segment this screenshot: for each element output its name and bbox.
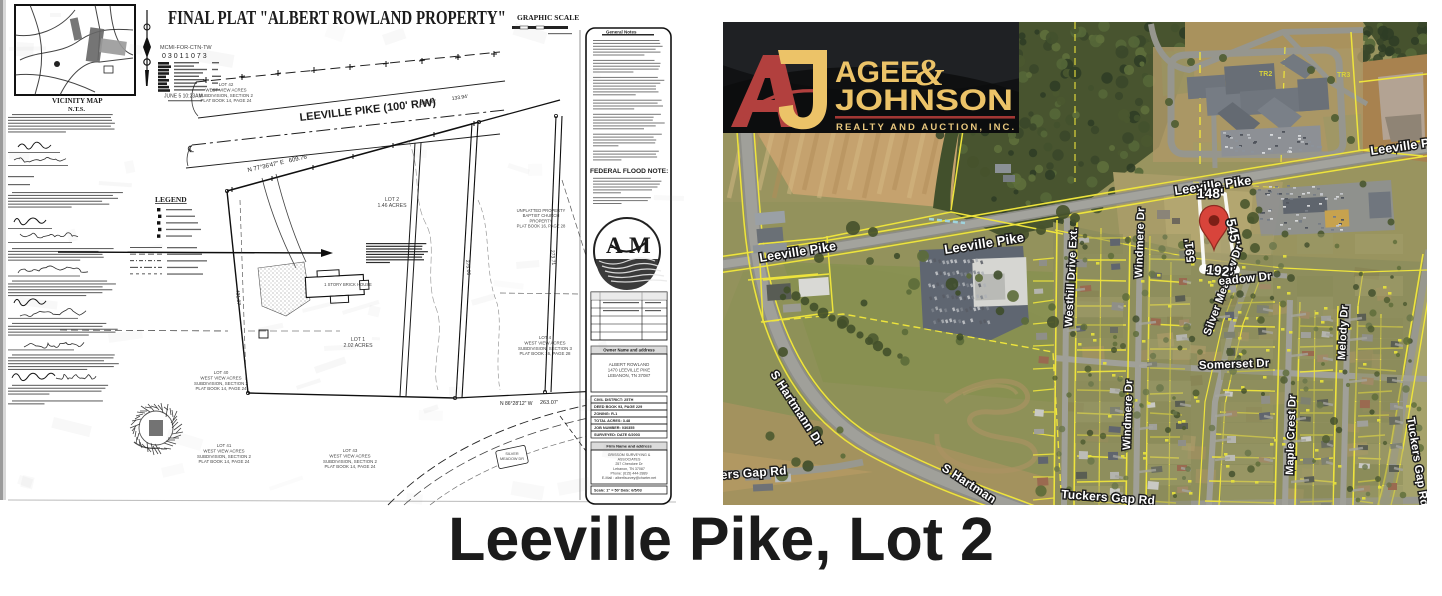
svg-text:SUBDIVISION, SECTION 2: SUBDIVISION, SECTION 2 [323,459,377,464]
svg-text:Scale: 1" = 50' Date: 6/5/: Scale: 1" = 50' Date: 6/5/03 [594,489,642,493]
svg-text:SURVEYED: DATE 6/2003: SURVEYED: DATE 6/2003 [594,433,640,437]
svg-text:148': 148' [1197,186,1224,201]
svg-text:JOB NUMBER: 030355: JOB NUMBER: 030355 [594,426,635,430]
svg-text:PLAT BOOK 14, PAGE 24: PLAT BOOK 14, PAGE 24 [324,464,376,469]
svg-text:℄: ℄ [187,144,194,154]
svg-text:SUBDIVISION, SECTION 2: SUBDIVISION, SECTION 2 [194,381,248,386]
svg-text:Lebanon, TN 37087: Lebanon, TN 37087 [613,467,645,471]
svg-text:273.71: 273.71 [549,250,556,266]
svg-text:WEST VIEW ACRES: WEST VIEW ACRES [200,375,241,380]
svg-text:GRAPHIC SCALE: GRAPHIC SCALE [517,13,579,22]
svg-text:WEST VIEW ACRES: WEST VIEW ACRES [329,453,370,458]
svg-text:1.46 ACRES: 1.46 ACRES [377,203,407,209]
svg-text:MEADOW DR: MEADOW DR [500,457,524,461]
svg-text:TR3: TR3 [1337,72,1350,79]
svg-text:LOT 42: LOT 42 [219,82,234,87]
svg-text:LOT 4: LOT 4 [539,335,552,340]
svg-text:N 86°28'12" W: N 86°28'12" W [500,401,533,407]
svg-text:1 STORY BRICK HOUSE: 1 STORY BRICK HOUSE [324,282,372,287]
svg-text:263.07': 263.07' [540,400,558,406]
svg-text:Windmere Dr: Windmere Dr [1121,379,1135,450]
svg-text:LOT 1: LOT 1 [351,337,365,343]
svg-text:E-Mail : albertlsurvey@charter: E-Mail : albertlsurvey@charter.net [602,476,656,480]
svg-text:LOT 41: LOT 41 [217,443,232,448]
svg-text:Phone: (615) 444-2889: Phone: (615) 444-2889 [611,471,648,475]
svg-text:LOT 2: LOT 2 [385,197,399,203]
svg-text:JOHNSON: JOHNSON [835,84,1013,117]
svg-text:SUBDIVISION, SECTION 3: SUBDIVISION, SECTION 3 [518,346,572,351]
svg-text:VICINITY MAP: VICINITY MAP [52,97,103,105]
svg-text:PLAT BOOK 14, PAGE 24: PLAT BOOK 14, PAGE 24 [200,98,252,103]
svg-text:Somerset Dr: Somerset Dr [1199,358,1270,372]
svg-text:M: M [629,233,651,258]
svg-text:ASSOCIATES: ASSOCIATES [618,458,641,462]
svg-text:WEST VIEW ACRES: WEST VIEW ACRES [205,87,246,92]
svg-text:REALTY AND AUCTION, INC.: REALTY AND AUCTION, INC. [836,122,1016,133]
svg-text:WEST VIEW ACRES: WEST VIEW ACRES [524,340,565,345]
svg-text:1470 LEEVILLE PIKE: 1470 LEEVILLE PIKE [608,367,651,372]
svg-text:SUBDIVISION, SECTION 2: SUBDIVISION, SECTION 2 [197,454,251,459]
svg-text:ZONING: R-1: ZONING: R-1 [594,412,617,416]
svg-text:Windmere Dr: Windmere Dr [1133,207,1147,278]
svg-text:PLAT BOOK 14, PAGE 24: PLAT BOOK 14, PAGE 24 [198,459,250,464]
svg-text:WEST VIEW ACRES: WEST VIEW ACRES [203,448,244,453]
svg-text:N.T.S.: N.T.S. [68,106,85,113]
svg-text:SILVER: SILVER [505,452,518,456]
svg-text:591': 591' [1182,238,1198,263]
svg-text:ALBERT ROWLAND: ALBERT ROWLAND [609,362,650,367]
svg-text:PLAT BOOK 14, PAGE 24: PLAT BOOK 14, PAGE 24 [195,386,247,391]
svg-text:257 Cherokee Dr: 257 Cherokee Dr [615,462,643,466]
svg-text:LEBANON, TN 37087: LEBANON, TN 37087 [608,373,651,378]
svg-text:PLAT BOOK 16, PAGE 28: PLAT BOOK 16, PAGE 28 [519,351,571,356]
svg-text:JUNE 5 10:23AM: JUNE 5 10:23AM [164,94,203,100]
svg-text:FEDERAL FLOOD NOTE:: FEDERAL FLOOD NOTE: [590,168,668,175]
svg-text:SUBDIVISION, SECTION 2: SUBDIVISION, SECTION 2 [199,93,253,98]
svg-text:TOTAL ACRES: 3.48: TOTAL ACRES: 3.48 [594,419,630,423]
svg-text:General Notes: General Notes [606,30,637,35]
svg-text:192': 192' [1206,262,1234,280]
svg-text:LOT 43: LOT 43 [343,448,358,453]
svg-text:Owner Name and address: Owner Name and address [603,348,655,353]
svg-text:TR2: TR2 [1259,71,1272,78]
svg-text:A: A [606,233,623,258]
svg-text:LOT 40: LOT 40 [214,370,229,375]
svg-text:LEGEND: LEGEND [155,195,187,204]
svg-text:PLAT BOOK 16, PAGE 28: PLAT BOOK 16, PAGE 28 [517,224,566,229]
